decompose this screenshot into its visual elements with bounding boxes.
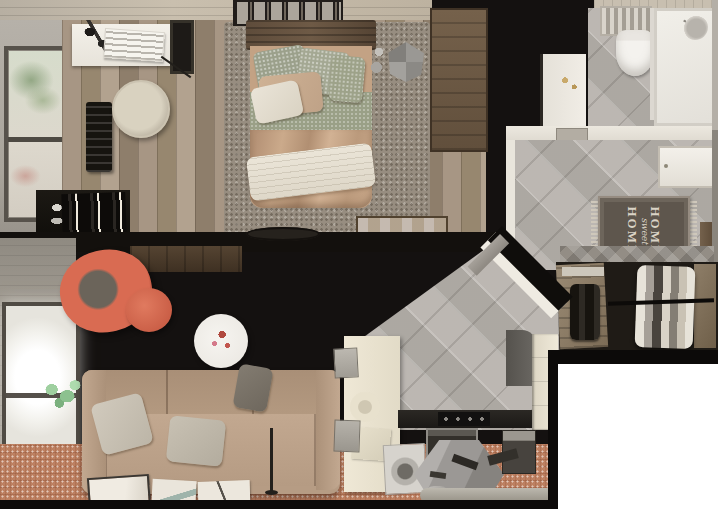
gold-faucet [556, 70, 582, 96]
toilet [616, 30, 654, 76]
shower-head [682, 14, 708, 40]
bathroom-right-wall [712, 0, 718, 130]
entry-door [658, 146, 716, 188]
silver-decor [366, 44, 392, 80]
mat-line-2: sweet [639, 218, 648, 245]
divider-dish [246, 227, 320, 241]
typewriter [103, 28, 165, 62]
white-cutout-area [558, 364, 718, 509]
sofa-pillow-beige [166, 415, 227, 467]
hanging-chair [112, 80, 170, 138]
wall-cabinet-1 [333, 347, 359, 378]
boots [570, 284, 600, 340]
cutout-border-left [548, 350, 558, 509]
closet-door-right [694, 264, 716, 348]
round-coffee-table [194, 314, 248, 368]
plate [350, 392, 380, 422]
wall-cabinet-2 [333, 420, 360, 453]
bottom-wall [0, 500, 558, 509]
living-wood-shelf [130, 246, 242, 272]
wardrobe-cabinet [430, 8, 488, 152]
apartment-top-down-render: HOME sweet HOME [0, 0, 718, 509]
shoe-shelf [562, 267, 604, 276]
pillow-sage-small [328, 55, 366, 104]
hanging-clothes [635, 265, 696, 349]
radiator [86, 102, 112, 172]
cutout-border-top [548, 350, 718, 364]
stove [438, 412, 490, 426]
green-plant [36, 372, 88, 416]
coral-ottoman [126, 288, 172, 332]
floor-lamp [270, 428, 273, 492]
